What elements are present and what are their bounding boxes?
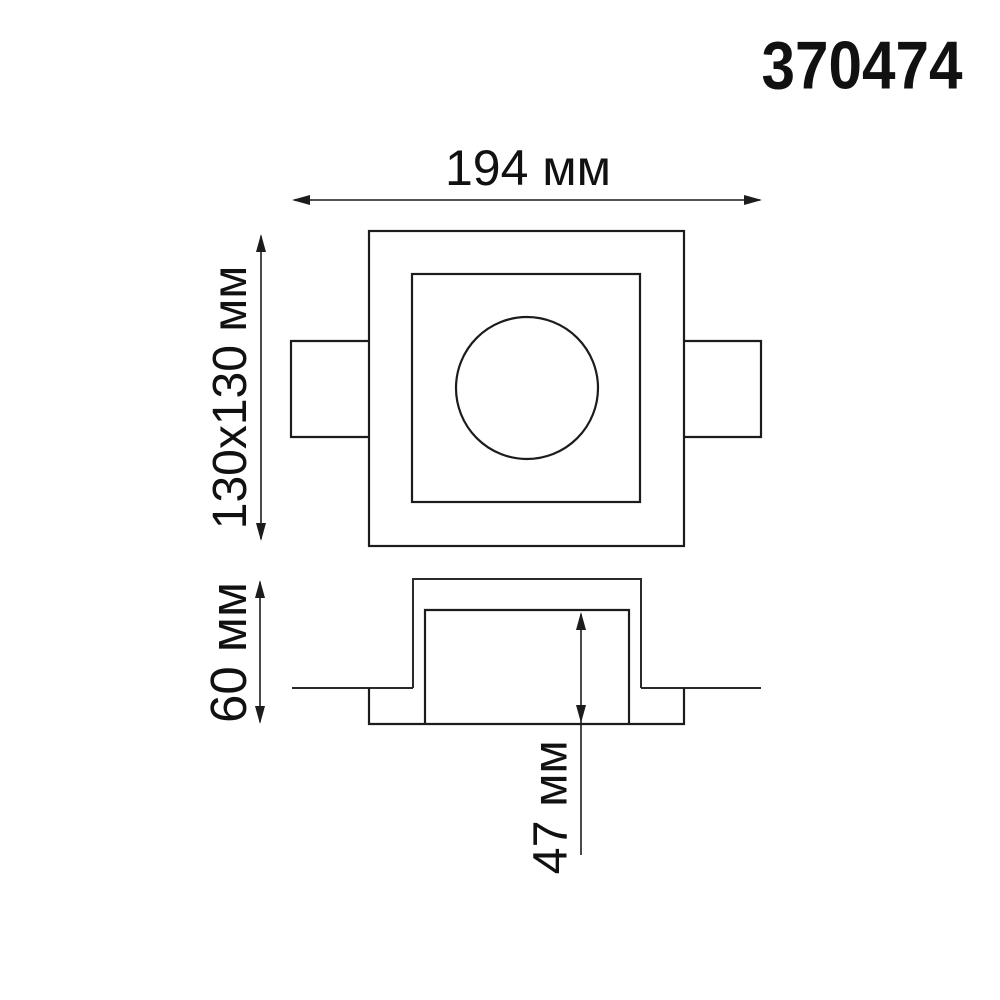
- svg-text:60 мм: 60 мм: [200, 582, 257, 723]
- svg-text:47 мм: 47 мм: [524, 740, 578, 874]
- svg-text:194 мм: 194 мм: [445, 140, 611, 196]
- svg-text:130x130 мм: 130x130 мм: [204, 266, 257, 530]
- svg-text:370474: 370474: [762, 28, 963, 104]
